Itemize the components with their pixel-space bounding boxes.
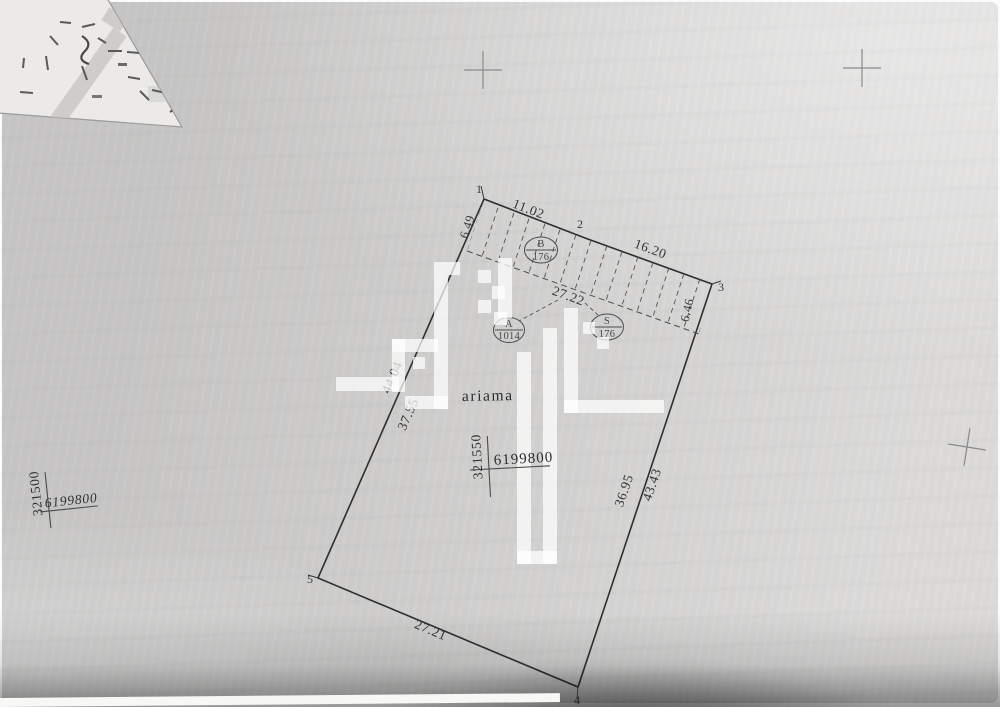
grid-mark-center: 321550 6199800 [468, 430, 555, 498]
scanned-survey-photo: 11.02 16.20 6.49 27.22 6.46 44.04 37.55 … [0, 0, 1000, 707]
grid-cross-right [945, 425, 988, 468]
parcel-tag-s: S 176 [591, 314, 624, 340]
grid-mark-west: 321500 6199800 [26, 464, 100, 529]
grid-west-easting: 321500 [26, 470, 46, 517]
parcel-plan: 11.02 16.20 6.49 27.22 6.46 44.04 37.55 … [307, 180, 724, 707]
city-skyline-watermark-icon [336, 258, 664, 564]
dim-strip-left: 6.49 [457, 213, 478, 240]
survey-plan-drawing: 11.02 16.20 6.49 27.22 6.46 44.04 37.55 … [0, 0, 1000, 707]
dim-right-outer: 43.43 [639, 466, 664, 502]
vertex-label-1: 1 [476, 182, 482, 196]
inset-location-map [0, 0, 182, 128]
vertex-label-5: 5 [307, 572, 313, 586]
grid-west-northing: 6199800 [44, 490, 98, 510]
dim-strip-right: 6.46 [678, 297, 697, 323]
parcel-tag-b-letter: B [537, 239, 544, 250]
annotations-top-layer: ariama 321550 6199800 321500 6199800 [26, 387, 555, 530]
vertex-label-4: 4 [574, 693, 580, 707]
parcel-boundary [318, 199, 712, 687]
grid-center-northing: 6199800 [493, 450, 553, 469]
parcel-tag-a-number: 1014 [498, 331, 521, 342]
vertex-label-2: 2 [577, 217, 583, 231]
grid-center-easting: 321550 [468, 434, 485, 480]
dim-right-inner: 36.95 [611, 472, 636, 508]
dim-strip-inner: 27.22 [550, 283, 586, 309]
dim-top-left: 11.02 [511, 196, 547, 222]
parcel-tag-b-number: 176 [533, 252, 550, 263]
parcel-tag-s-letter: S [604, 316, 610, 327]
parcel-tag-b: B 176 [525, 237, 558, 263]
grid-cross-top-right [843, 49, 881, 87]
tag-leaders [519, 300, 599, 321]
dim-bottom: 27.21 [412, 616, 449, 643]
vertex-label-3: 3 [718, 280, 724, 294]
street-name-partial: ariama [462, 387, 514, 405]
grid-cross-top-left [464, 51, 502, 89]
